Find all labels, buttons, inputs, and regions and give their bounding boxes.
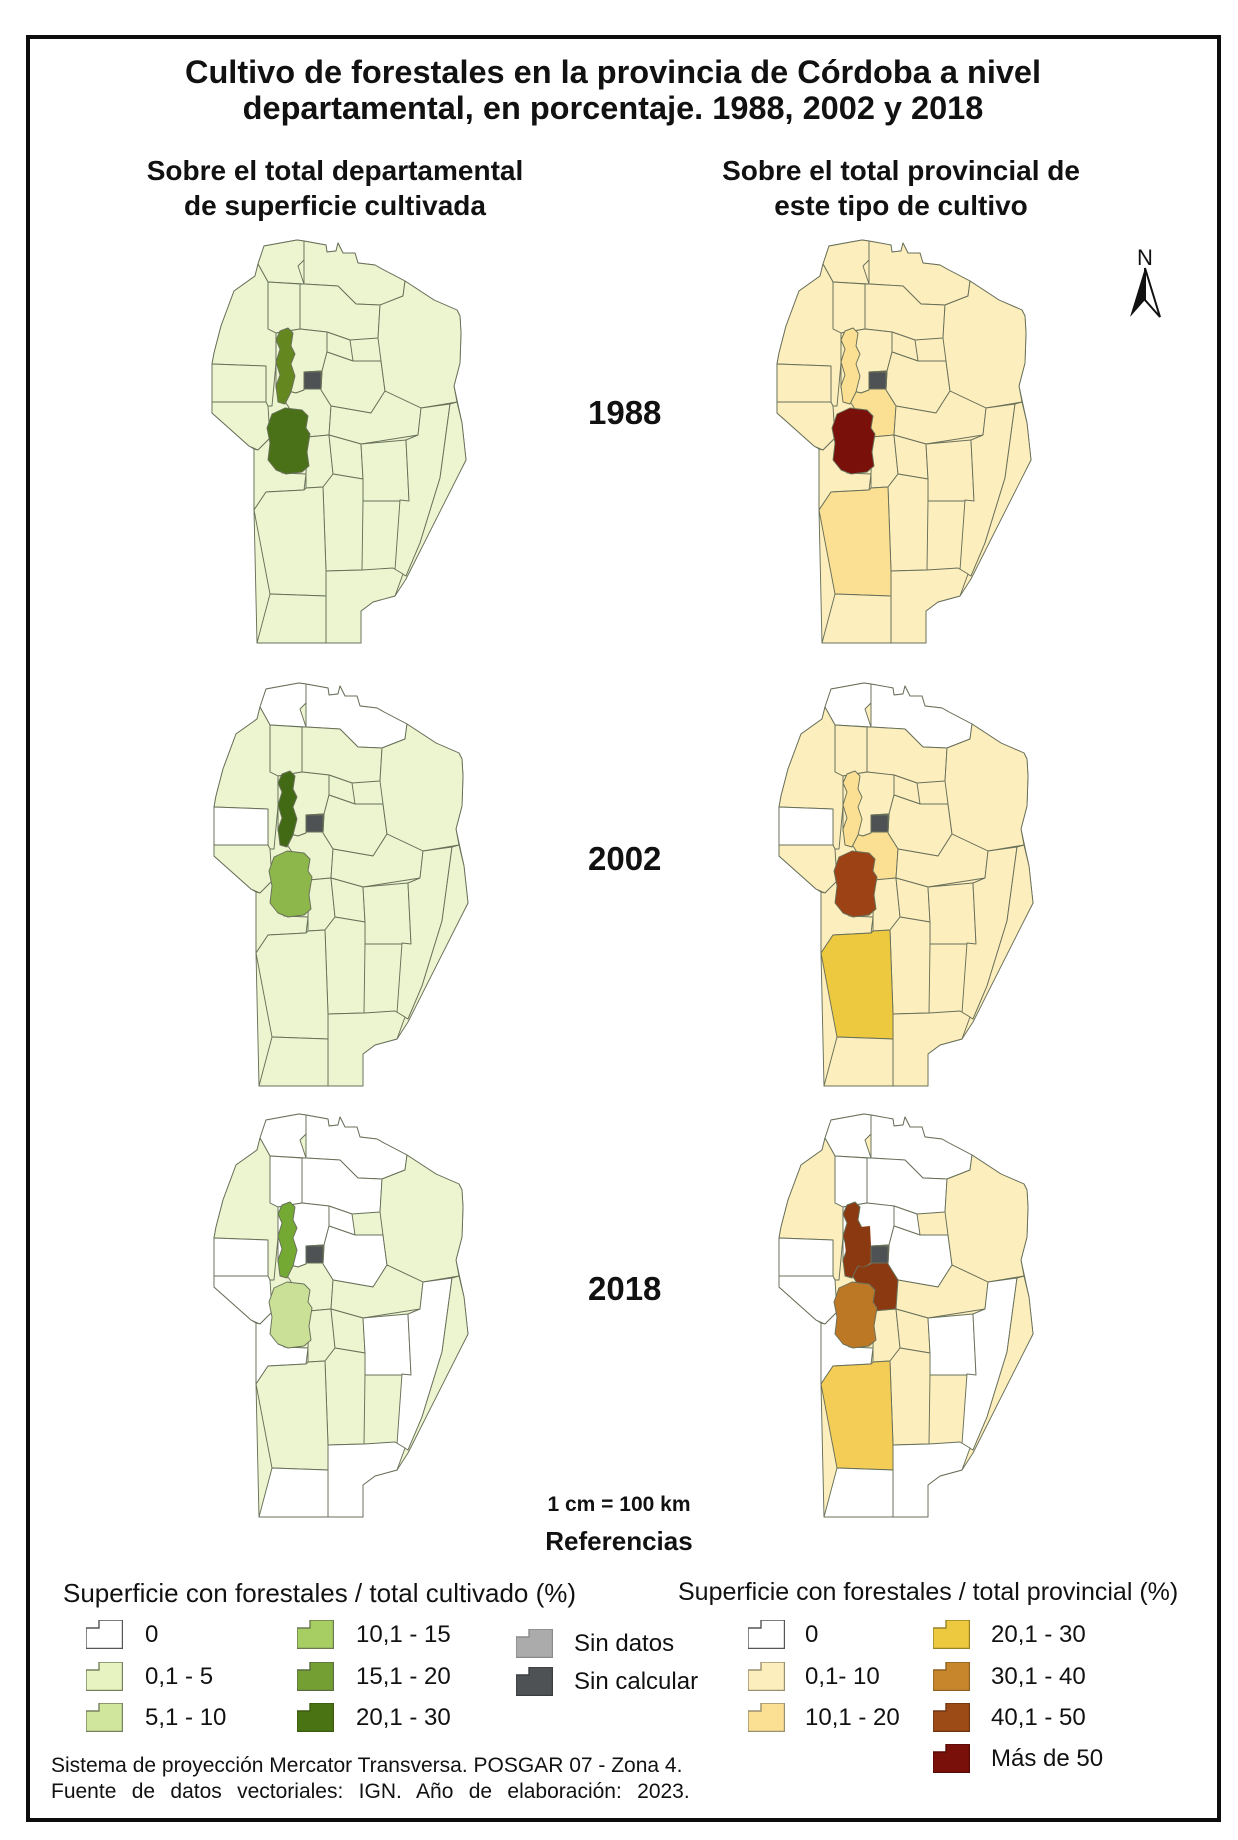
svg-text:N: N: [1137, 245, 1153, 270]
